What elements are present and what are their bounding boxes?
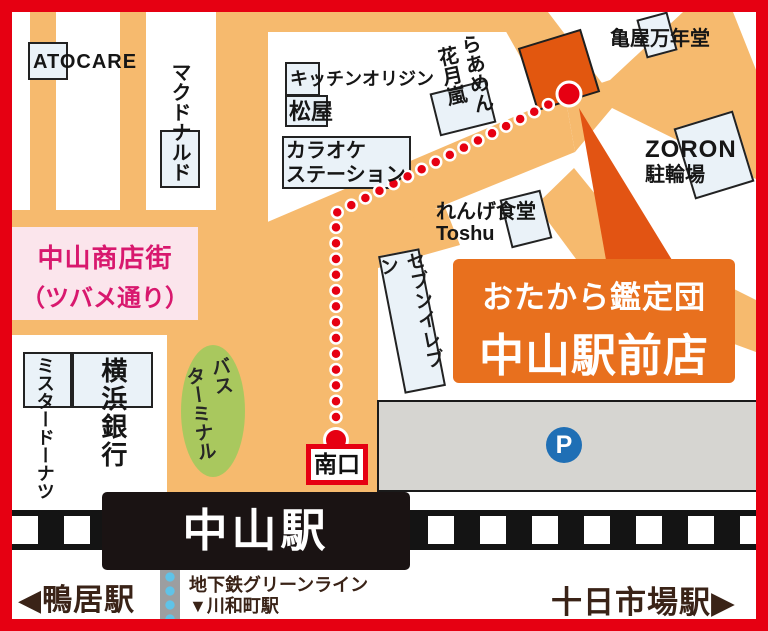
zoron-sub: 駐輪場	[645, 164, 737, 187]
renge-toshu-label: れんげ食堂 Toshu	[436, 201, 536, 245]
frame-left	[0, 0, 12, 631]
kameya-label: 亀屋万年堂	[610, 28, 710, 51]
subway-line-label: 地下鉄グリーンライン ▼川和町駅	[189, 575, 368, 617]
shopping-street-line2: （ツバメ通り）	[12, 278, 198, 313]
store-callout-line2: 中山駅前店	[453, 319, 735, 384]
store-callout: おたから鑑定団 中山駅前店	[453, 259, 735, 383]
road-shopping-street-top	[12, 210, 216, 228]
shopping-street-line1: 中山商店街	[12, 238, 198, 275]
left-arrow-icon: ◀	[18, 584, 42, 617]
right-arrow-icon: ▶	[711, 585, 736, 620]
renge-line2: Toshu	[436, 223, 536, 245]
parking-icon: P	[546, 427, 582, 463]
subway-next-station: ▼川和町駅	[189, 596, 368, 617]
south-exit-sign: 南口	[306, 444, 368, 485]
left-station-label: ◀鴨居駅	[18, 575, 135, 619]
mcdonalds-label: マクドナルド	[167, 62, 190, 182]
zoron-name: ZORON	[645, 136, 737, 164]
atocare-label: ATOCARE	[33, 51, 137, 74]
karaoke-line2: ステーション	[286, 163, 406, 187]
station-sign: 中山駅	[102, 492, 410, 570]
renge-line1: れんげ食堂	[436, 201, 536, 223]
road-vertical-2	[120, 12, 146, 212]
frame-top	[0, 0, 768, 12]
karaoke-line1: カラオケ	[286, 139, 406, 163]
shopping-street-banner: 中山商店街 （ツバメ通り）	[12, 227, 198, 320]
right-station-label: 十日市場駅▶	[551, 577, 736, 622]
frame-bottom	[0, 619, 768, 631]
road-top-horizontal	[216, 12, 546, 32]
left-station-name: 鴨居駅	[42, 584, 135, 617]
karaoke-station-label: カラオケ ステーション	[286, 139, 406, 187]
store-callout-line1: おたから鑑定団	[453, 272, 735, 317]
yokohama-bank-label: 横浜銀行	[97, 357, 127, 469]
zoron-label: ZORON 駐輪場	[645, 136, 737, 187]
right-station-name: 十日市場駅	[551, 585, 711, 620]
matsuya-label: 松屋	[289, 99, 333, 124]
subway-line-dots	[160, 570, 180, 619]
mister-donut-label: ミスタードーナツ	[34, 356, 55, 500]
frame-right	[756, 0, 768, 631]
access-map: ATOCARE マクドナルド キッチンオリジン 松屋 カラオケ ステーション ら…	[0, 0, 768, 631]
kitchen-origin-label: キッチンオリジン	[290, 69, 434, 90]
subway-line-name: 地下鉄グリーンライン	[189, 575, 368, 596]
